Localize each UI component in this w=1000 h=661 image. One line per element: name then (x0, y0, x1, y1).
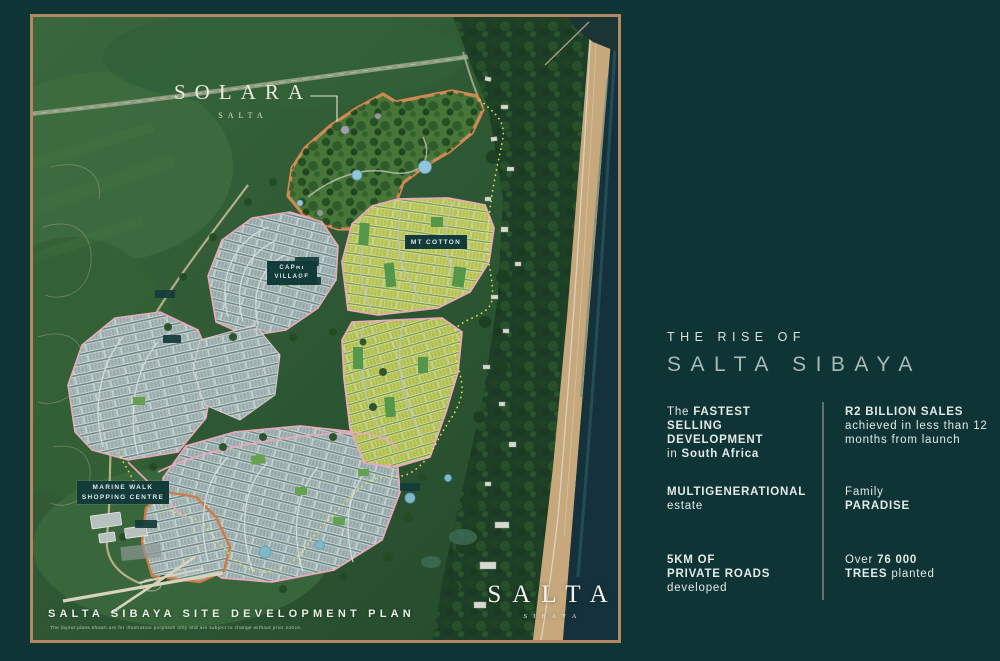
stat-trees-planted: Over 76 000 TREES planted (845, 553, 935, 581)
solara-brand: SALTA (143, 111, 343, 120)
minor-label (135, 520, 157, 528)
panel-eyebrow: THE RISE OF (667, 330, 922, 344)
stat-text: 5KM OF (667, 553, 770, 567)
minor-label (295, 257, 319, 266)
stat-text: planted (887, 568, 934, 580)
marine-walk-label: MARINE WALK SHOPPING CENTRE (77, 481, 169, 504)
plan-title: SALTA SIBAYA SITE DEVELOPMENT PLAN (48, 608, 415, 620)
stat-text: TREES (845, 568, 887, 580)
stat-multigenerational: MULTIGENERATIONAL estate (667, 485, 806, 513)
mt-cotton-label: MT COTTON (405, 235, 467, 249)
stat-text: Over (845, 554, 877, 566)
stat-fastest-selling: The FASTEST SELLING DEVELOPMENT in South… (667, 405, 763, 461)
stat-text: PARADISE (845, 499, 910, 513)
minor-label (163, 335, 181, 343)
stat-text: 76 000 (877, 554, 917, 566)
stat-text: The (667, 406, 693, 418)
stat-billion-sales: R2 BILLION SALES achieved in less than 1… (845, 405, 988, 447)
stat-text: DEVELOPMENT (667, 433, 763, 447)
minor-label (400, 483, 420, 491)
stat-text: developed (667, 581, 770, 595)
solara-name: SOLARA (143, 80, 343, 105)
stat-text: FASTEST (693, 406, 750, 418)
stat-text: months from launch (845, 433, 988, 447)
minor-label (155, 290, 175, 298)
stats-divider (822, 402, 824, 600)
stat-text: R2 BILLION SALES (845, 405, 988, 419)
panel-header: THE RISE OF SALTA SIBAYA (667, 330, 922, 377)
salta-sibaya-logo: SALTA SIBAYA (485, 581, 621, 620)
stat-text: MULTIGENERATIONAL (667, 485, 806, 499)
stat-text: achieved in less than 12 (845, 419, 988, 433)
panel-title: SALTA SIBAYA (667, 353, 922, 377)
marine-line1: MARINE WALK (93, 483, 154, 493)
site-plan-map: SOLARA SALTA MT COTTON CAPRI VILLAGE MAR… (30, 14, 621, 643)
stat-text: PRIVATE ROADS (667, 567, 770, 581)
solara-parcel-label: SOLARA SALTA (143, 80, 343, 120)
mt-cotton-text: MT COTTON (411, 239, 461, 246)
stat-text: Family (845, 485, 910, 499)
logo-subtitle: SIBAYA (485, 613, 621, 620)
stat-text: estate (667, 499, 806, 513)
stat-text: South Africa (682, 448, 760, 460)
stats-grid: The FASTEST SELLING DEVELOPMENT in South… (667, 405, 987, 605)
minor-label (301, 277, 321, 285)
stat-text: SELLING (667, 419, 763, 433)
page-root: { "panel": { "eyebrow": "THE RISE OF", "… (0, 0, 1000, 661)
marine-line2: SHOPPING CENTRE (82, 493, 164, 503)
plan-disclaimer: The layout plans shown are for illustrat… (50, 625, 302, 630)
stat-family-paradise: Family PARADISE (845, 485, 910, 513)
stat-text: in (667, 448, 682, 460)
stat-private-roads: 5KM OF PRIVATE ROADS developed (667, 553, 770, 595)
logo-name: SALTA (485, 581, 621, 609)
